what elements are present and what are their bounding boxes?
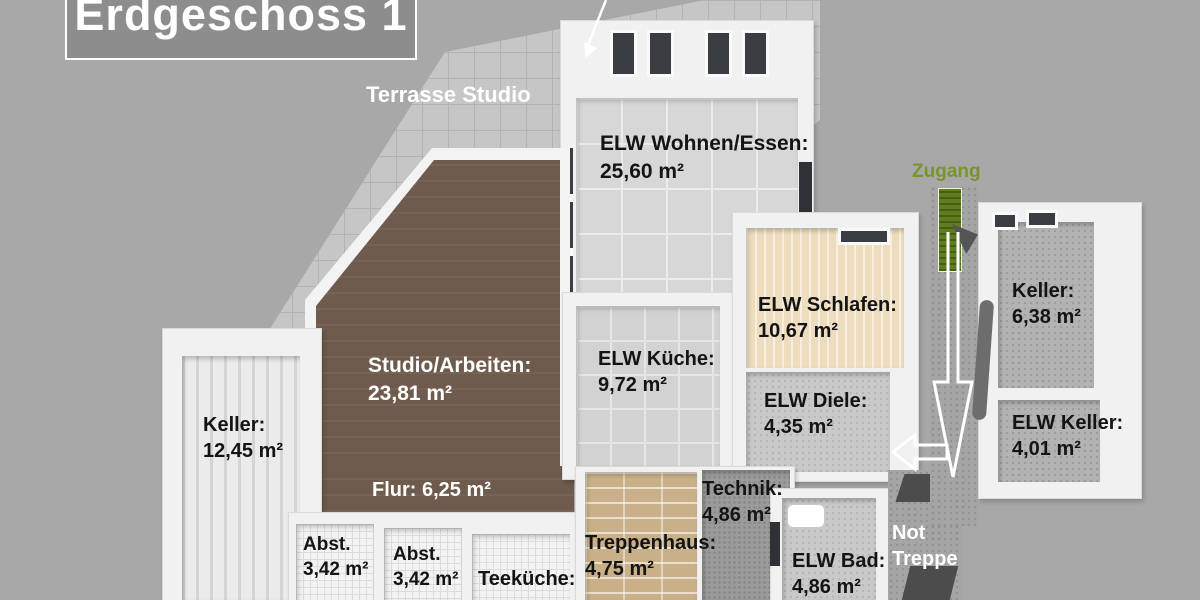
page-title-text: Erdgeschoss 1 xyxy=(74,0,407,41)
window-icon xyxy=(992,212,1018,230)
window-icon xyxy=(705,30,732,77)
window-icon xyxy=(1026,210,1058,228)
window-icon xyxy=(838,228,890,245)
page-title: Erdgeschoss 1 xyxy=(65,0,417,60)
label-abst2: Abst.3,42 m² xyxy=(393,542,458,592)
floorplan-canvas: Erdgeschoss 1 Terrasse Studio Zugang ELW… xyxy=(0,0,1200,600)
label-kueche: ELW Küche:9,72 m² xyxy=(598,346,715,399)
room-keller-left-floor xyxy=(182,356,300,600)
label-not-treppe: NotTreppe xyxy=(892,520,958,573)
label-schlafen: ELW Schlafen:10,67 m² xyxy=(758,292,897,345)
entrance-arrow-icon xyxy=(890,432,950,472)
label-elw-keller: ELW Keller:4,01 m² xyxy=(1012,410,1123,463)
toilet-icon xyxy=(787,504,825,528)
window-icon xyxy=(742,30,769,77)
label-flur: Flur: 6,25 m² xyxy=(372,477,491,503)
label-keller-right: Keller:6,38 m² xyxy=(1012,278,1081,331)
label-diele: ELW Diele:4,35 m² xyxy=(764,388,867,441)
label-bad: ELW Bad:4,86 m² xyxy=(792,548,885,600)
window-icon xyxy=(610,30,637,77)
zugang-label: Zugang xyxy=(912,161,981,183)
label-technik: Technik:4,86 m² xyxy=(702,476,783,529)
window-icon xyxy=(647,30,674,77)
label-studio: Studio/Arbeiten:23,81 m² xyxy=(368,352,531,407)
label-keller-left: Keller:12,45 m² xyxy=(203,412,283,465)
label-abst1: Abst.3,42 m² xyxy=(303,532,368,582)
callout-arrow-icon xyxy=(566,0,610,66)
terrace-label: Terrasse Studio xyxy=(366,82,531,108)
label-teekueche: Teeküche: xyxy=(478,566,575,592)
label-treppenhaus: Treppenhaus:4,75 m² xyxy=(585,530,716,583)
label-wohnen: ELW Wohnen/Essen:25,60 m² xyxy=(600,130,808,185)
